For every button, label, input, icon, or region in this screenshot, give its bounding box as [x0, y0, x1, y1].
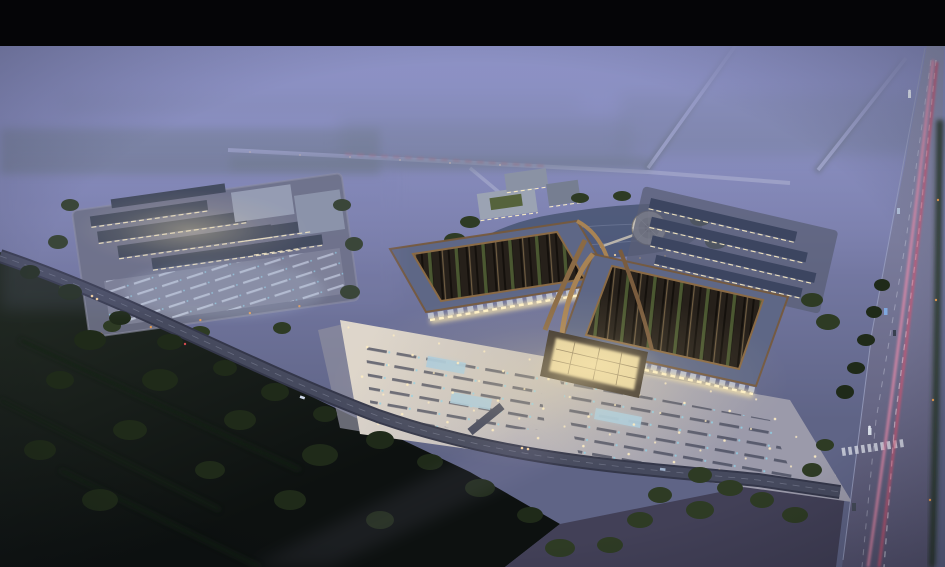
- rendering-canvas: [0, 0, 945, 567]
- letterbox-top-bar: [0, 0, 945, 46]
- vignette: [0, 45, 945, 567]
- architectural-rendering: [0, 0, 945, 567]
- atmosphere: [0, 45, 945, 567]
